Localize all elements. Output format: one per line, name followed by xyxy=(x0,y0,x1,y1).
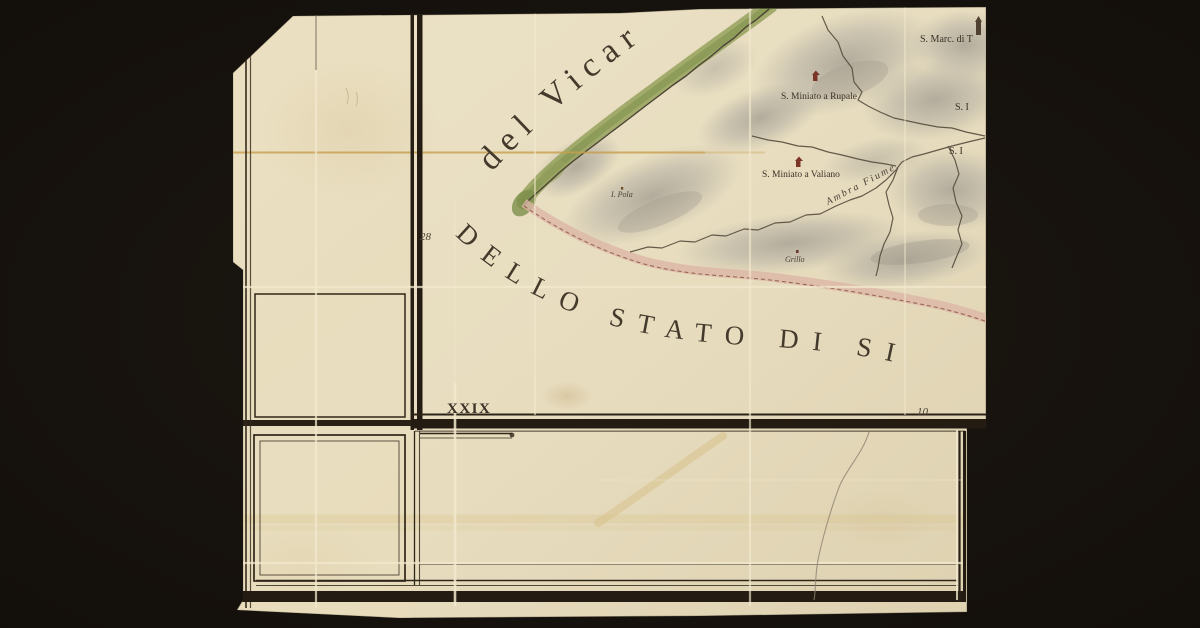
place-label-rupale: S. Miniato a Rupale xyxy=(781,92,857,102)
neatline-horizontal xyxy=(411,419,986,429)
place-label-si-1: S. I xyxy=(955,102,969,113)
place-label-s-marc: S. Marc. di T xyxy=(920,34,973,45)
place-label-grillo: Grillo xyxy=(785,255,805,264)
grid-number-left: 28 xyxy=(420,231,432,243)
scanned-map-photo: del Vicar DELLO STATO DI SI Ambra Fiume.… xyxy=(0,0,1200,628)
stain xyxy=(541,381,593,411)
neatline-vertical xyxy=(411,14,415,430)
place-label-si-2: S. I xyxy=(949,146,963,157)
grillo-symbol xyxy=(796,250,799,253)
grid-number-bottom: 10 xyxy=(917,406,929,418)
place-label-pola: I. Pola xyxy=(610,190,633,199)
stain xyxy=(220,520,380,600)
place-label-valiano: S. Miniato a Valiano xyxy=(762,170,840,180)
sheet-number-label: XXIX xyxy=(447,401,491,417)
map-canvas: del Vicar DELLO STATO DI SI Ambra Fiume.… xyxy=(0,0,1200,628)
bottom-neatline xyxy=(233,591,964,602)
